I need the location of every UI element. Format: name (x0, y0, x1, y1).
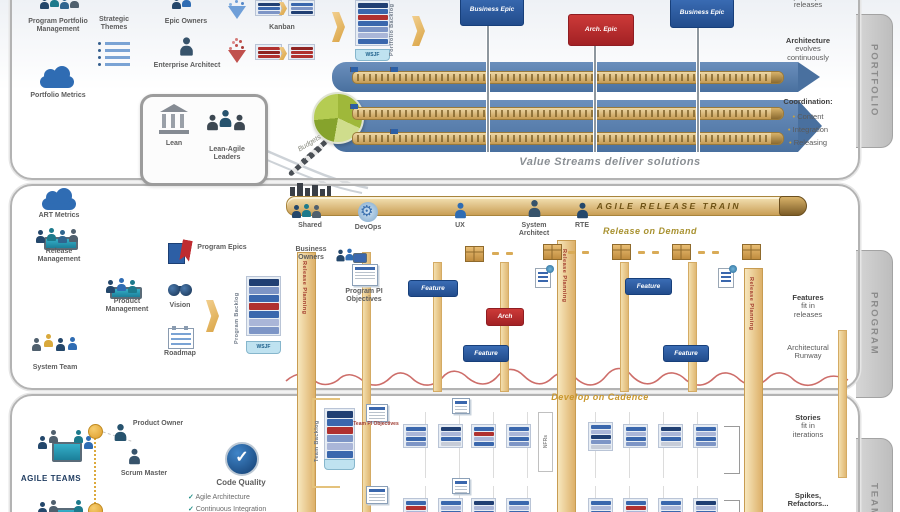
kanban-stack-business-2[interactable] (288, 0, 315, 16)
nfrs-strip: NFRs (538, 412, 553, 472)
epic-owners-label: Epic Owners (148, 18, 224, 26)
portfolio-backlog-stack[interactable] (355, 0, 390, 46)
epic-flag (350, 104, 358, 109)
release-dash (652, 251, 659, 254)
theme-line (105, 63, 130, 66)
devops-gear-icon: ⚙ (360, 204, 373, 219)
bullet-icon: • (792, 112, 795, 121)
scrum-master-icon[interactable] (129, 449, 140, 465)
program-epics-label: Program Epics (196, 244, 248, 252)
lean-agile-leaders-label: Lean-Agile Leaders (196, 146, 258, 163)
tab-portfolio[interactable]: PORTFOLIO (856, 14, 893, 148)
shared-label: Shared (286, 222, 334, 230)
vision-icon[interactable] (168, 284, 192, 297)
code-quality-item: ✓ Agile Architecture (180, 494, 308, 502)
agile-team-icon[interactable] (38, 500, 94, 512)
business-epic-funnel-icon (228, 6, 246, 19)
check-icon: ✓ (188, 506, 194, 512)
feature-box[interactable]: Feature (408, 280, 458, 297)
release-package-icon[interactable] (742, 244, 761, 260)
release-planning-bar[interactable]: Release Planning (744, 268, 763, 512)
kanban-stack-business-1[interactable] (255, 0, 282, 16)
program-pi-objectives-label: Program PI Objectives (336, 288, 392, 305)
story-card[interactable] (452, 398, 470, 414)
agile-release-train-mini[interactable] (352, 132, 784, 145)
safe-big-picture: PORTFOLIO PROGRAM TEAM Program Portfolio… (0, 0, 900, 512)
epics-note: Epics spanreleases (762, 0, 854, 10)
iteration-stack[interactable] (403, 424, 428, 448)
features-note: Featuresfit inreleases (762, 294, 854, 319)
arch-box[interactable]: Arch (486, 308, 524, 326)
release-dash (712, 251, 719, 254)
ux-icon[interactable] (455, 203, 466, 219)
role-connector-dot (88, 424, 103, 439)
role-connector-line (94, 438, 96, 504)
feature-box[interactable]: Feature (663, 345, 709, 362)
agile-team-icon[interactable] (38, 428, 94, 468)
team-pi-objectives-icon[interactable] (366, 404, 388, 422)
business-epic-sign-1[interactable]: Business Epic (460, 0, 524, 26)
system-architect-label: System Architect (512, 222, 556, 239)
program-backlog-stack[interactable] (246, 276, 281, 336)
city-skyline-icon (290, 182, 332, 196)
strategic-themes-icon[interactable] (96, 38, 130, 66)
velocity-bracket (724, 500, 740, 512)
release-dash (506, 252, 513, 255)
roadmap-label: Roadmap (154, 350, 206, 358)
iteration-stack[interactable] (658, 498, 683, 512)
arch-epic-sign[interactable]: Arch. Epic (568, 14, 634, 46)
release-dash (582, 251, 589, 254)
code-quality-label: Code Quality (196, 478, 286, 487)
art-metrics-label: ART Metrics (26, 212, 92, 220)
program-portfolio-management-icon[interactable] (40, 0, 84, 12)
epic-sign-pole (487, 20, 489, 152)
system-demo-icon[interactable] (718, 268, 734, 288)
system-team-label: System Team (18, 364, 92, 372)
agile-release-train-mini[interactable] (352, 71, 784, 84)
iteration-stack[interactable] (588, 498, 613, 512)
iteration-stack[interactable] (506, 498, 531, 512)
devops-label: DevOps (344, 224, 392, 232)
release-dash (698, 251, 705, 254)
strategic-themes-label: Strategic Themes (88, 16, 140, 33)
tab-team[interactable]: TEAM (856, 438, 893, 512)
iteration-stack[interactable] (623, 498, 648, 512)
system-demo-icon[interactable] (535, 268, 551, 288)
enterprise-architect-label: Enterprise Architect (152, 62, 222, 70)
business-owners-label: Business Owners (286, 246, 336, 263)
system-team-icon[interactable] (32, 334, 82, 358)
product-management-icon[interactable] (106, 278, 148, 296)
release-dash (638, 251, 645, 254)
team-backlog-vlabel: Team Backlog (314, 410, 320, 462)
release-dash (568, 251, 575, 254)
story-card[interactable] (452, 478, 470, 494)
coordination-note: Coordination: (762, 98, 854, 106)
tab-program[interactable]: PROGRAM (856, 250, 893, 398)
feature-box[interactable]: Feature (463, 345, 509, 362)
value-stream-1-arrowhead (798, 62, 820, 92)
develop-on-cadence-label: Develop on Cadence (470, 392, 730, 402)
agile-release-train-label: AGILE RELEASE TRAIN (597, 201, 805, 211)
epic-flag (390, 67, 398, 72)
shared-resources-icon[interactable] (292, 204, 328, 220)
theme-line (105, 42, 130, 45)
epic-owners-icon[interactable] (172, 0, 202, 12)
art-metrics-icon[interactable] (42, 198, 76, 210)
coordination-item: • Content (762, 113, 854, 121)
team-pi-objectives-label: Team PI Objectives (352, 422, 400, 428)
lean-agile-leaders-icon[interactable] (208, 112, 252, 138)
iteration-stack[interactable] (471, 424, 496, 448)
program-backlog-wsjf: WSJF (246, 341, 281, 354)
release-package-icon[interactable] (543, 244, 562, 260)
product-management-label: Product Management (92, 298, 162, 315)
iteration-stack[interactable] (471, 498, 496, 512)
agile-teams-label: AGILE TEAMS (16, 474, 86, 483)
iteration-stack[interactable] (403, 498, 428, 512)
epic-sign-pole (594, 42, 596, 152)
arch-epic-funnel-icon (228, 50, 246, 63)
program-portfolio-management-label: Program Portfolio Management (26, 18, 90, 35)
release-on-demand-label: Release on Demand (580, 226, 720, 236)
release-planning-bar[interactable]: Release Planning (557, 240, 576, 512)
role-connector-dot (88, 503, 103, 512)
theme-line (105, 56, 130, 59)
release-package-icon[interactable] (612, 244, 631, 260)
value-streams-caption: Value Streams deliver solutions (460, 156, 760, 169)
business-owners-icon[interactable] (336, 248, 366, 264)
feature-box[interactable]: Feature (625, 278, 672, 295)
release-dash (492, 252, 499, 255)
iteration-stack[interactable] (693, 424, 718, 448)
release-management-label: Release Management (24, 248, 94, 265)
iteration-boundary-bar (500, 262, 509, 392)
rte-icon[interactable] (577, 203, 588, 219)
code-quality-badge-icon[interactable]: ✓ (225, 442, 259, 476)
portfolio-backlog-wsjf: WSJF (355, 49, 390, 61)
product-owner-icon[interactable] (115, 424, 127, 441)
ux-label: UX (442, 222, 478, 230)
bullet-icon: • (789, 138, 792, 147)
code-quality-item: ✓ Continuous Integration (180, 506, 318, 512)
scrum-master-label: Scrum Master (118, 470, 170, 478)
program-pi-objectives-icon[interactable] (352, 264, 378, 286)
coordination-item: • Releasing (762, 139, 854, 147)
enterprise-architect-icon[interactable] (180, 37, 193, 55)
system-architect-icon[interactable] (529, 200, 541, 217)
program-epics-icon[interactable] (168, 240, 192, 266)
release-management-icon[interactable] (36, 228, 92, 246)
business-epic-sign-2[interactable]: Business Epic (670, 0, 734, 28)
iteration-stack[interactable] (438, 424, 463, 448)
portfolio-metrics-icon[interactable] (40, 76, 74, 88)
kanban-stack-arch-1[interactable] (255, 44, 282, 60)
bullet-icon: • (788, 125, 791, 134)
release-package-icon[interactable] (672, 244, 691, 260)
team-backlog-tray (324, 459, 355, 470)
portfolio-backlog-vlabel: Portfolio Backlog (389, 2, 395, 56)
epic-sign-pole (697, 22, 699, 152)
iteration-stack[interactable] (438, 498, 463, 512)
stories-note: Storiesfit initerations (762, 414, 854, 439)
iteration-stack[interactable] (693, 498, 718, 512)
lean-label: Lean (152, 140, 196, 148)
coordination-item: • Integration (762, 126, 854, 134)
architectural-runway-note: ArchitecturalRunway (762, 344, 854, 361)
roadmap-icon[interactable] (168, 328, 194, 349)
program-backlog-vlabel: Program Backlog (234, 280, 240, 344)
check-icon: ✓ (188, 494, 194, 501)
iteration-stack[interactable] (506, 424, 531, 448)
team-backlog-stack[interactable] (324, 408, 355, 460)
agile-release-train-mini[interactable] (352, 107, 784, 120)
theme-line (105, 49, 130, 52)
portfolio-metrics-label: Portfolio Metrics (28, 92, 88, 100)
vision-label: Vision (158, 302, 202, 310)
architecture-note: Architectureevolvescontinuously (762, 37, 854, 62)
velocity-bracket (724, 426, 740, 474)
release-package-icon[interactable] (465, 246, 484, 262)
iteration-stack[interactable] (623, 424, 648, 448)
product-owner-label: Product Owner (132, 420, 184, 428)
iteration-stack[interactable] (658, 424, 683, 448)
iteration-stack[interactable] (588, 422, 613, 451)
kanban-stack-arch-2[interactable] (288, 44, 315, 60)
lean-house-icon[interactable] (158, 104, 190, 134)
kanban-label: Kanban (250, 24, 314, 32)
team-pi-objectives-icon[interactable] (366, 486, 388, 504)
iteration-boundary-bar (688, 262, 697, 392)
epic-flag (390, 129, 398, 134)
spikes-note: Spikes,Refactors... (762, 492, 854, 509)
epic-flag (350, 67, 358, 72)
